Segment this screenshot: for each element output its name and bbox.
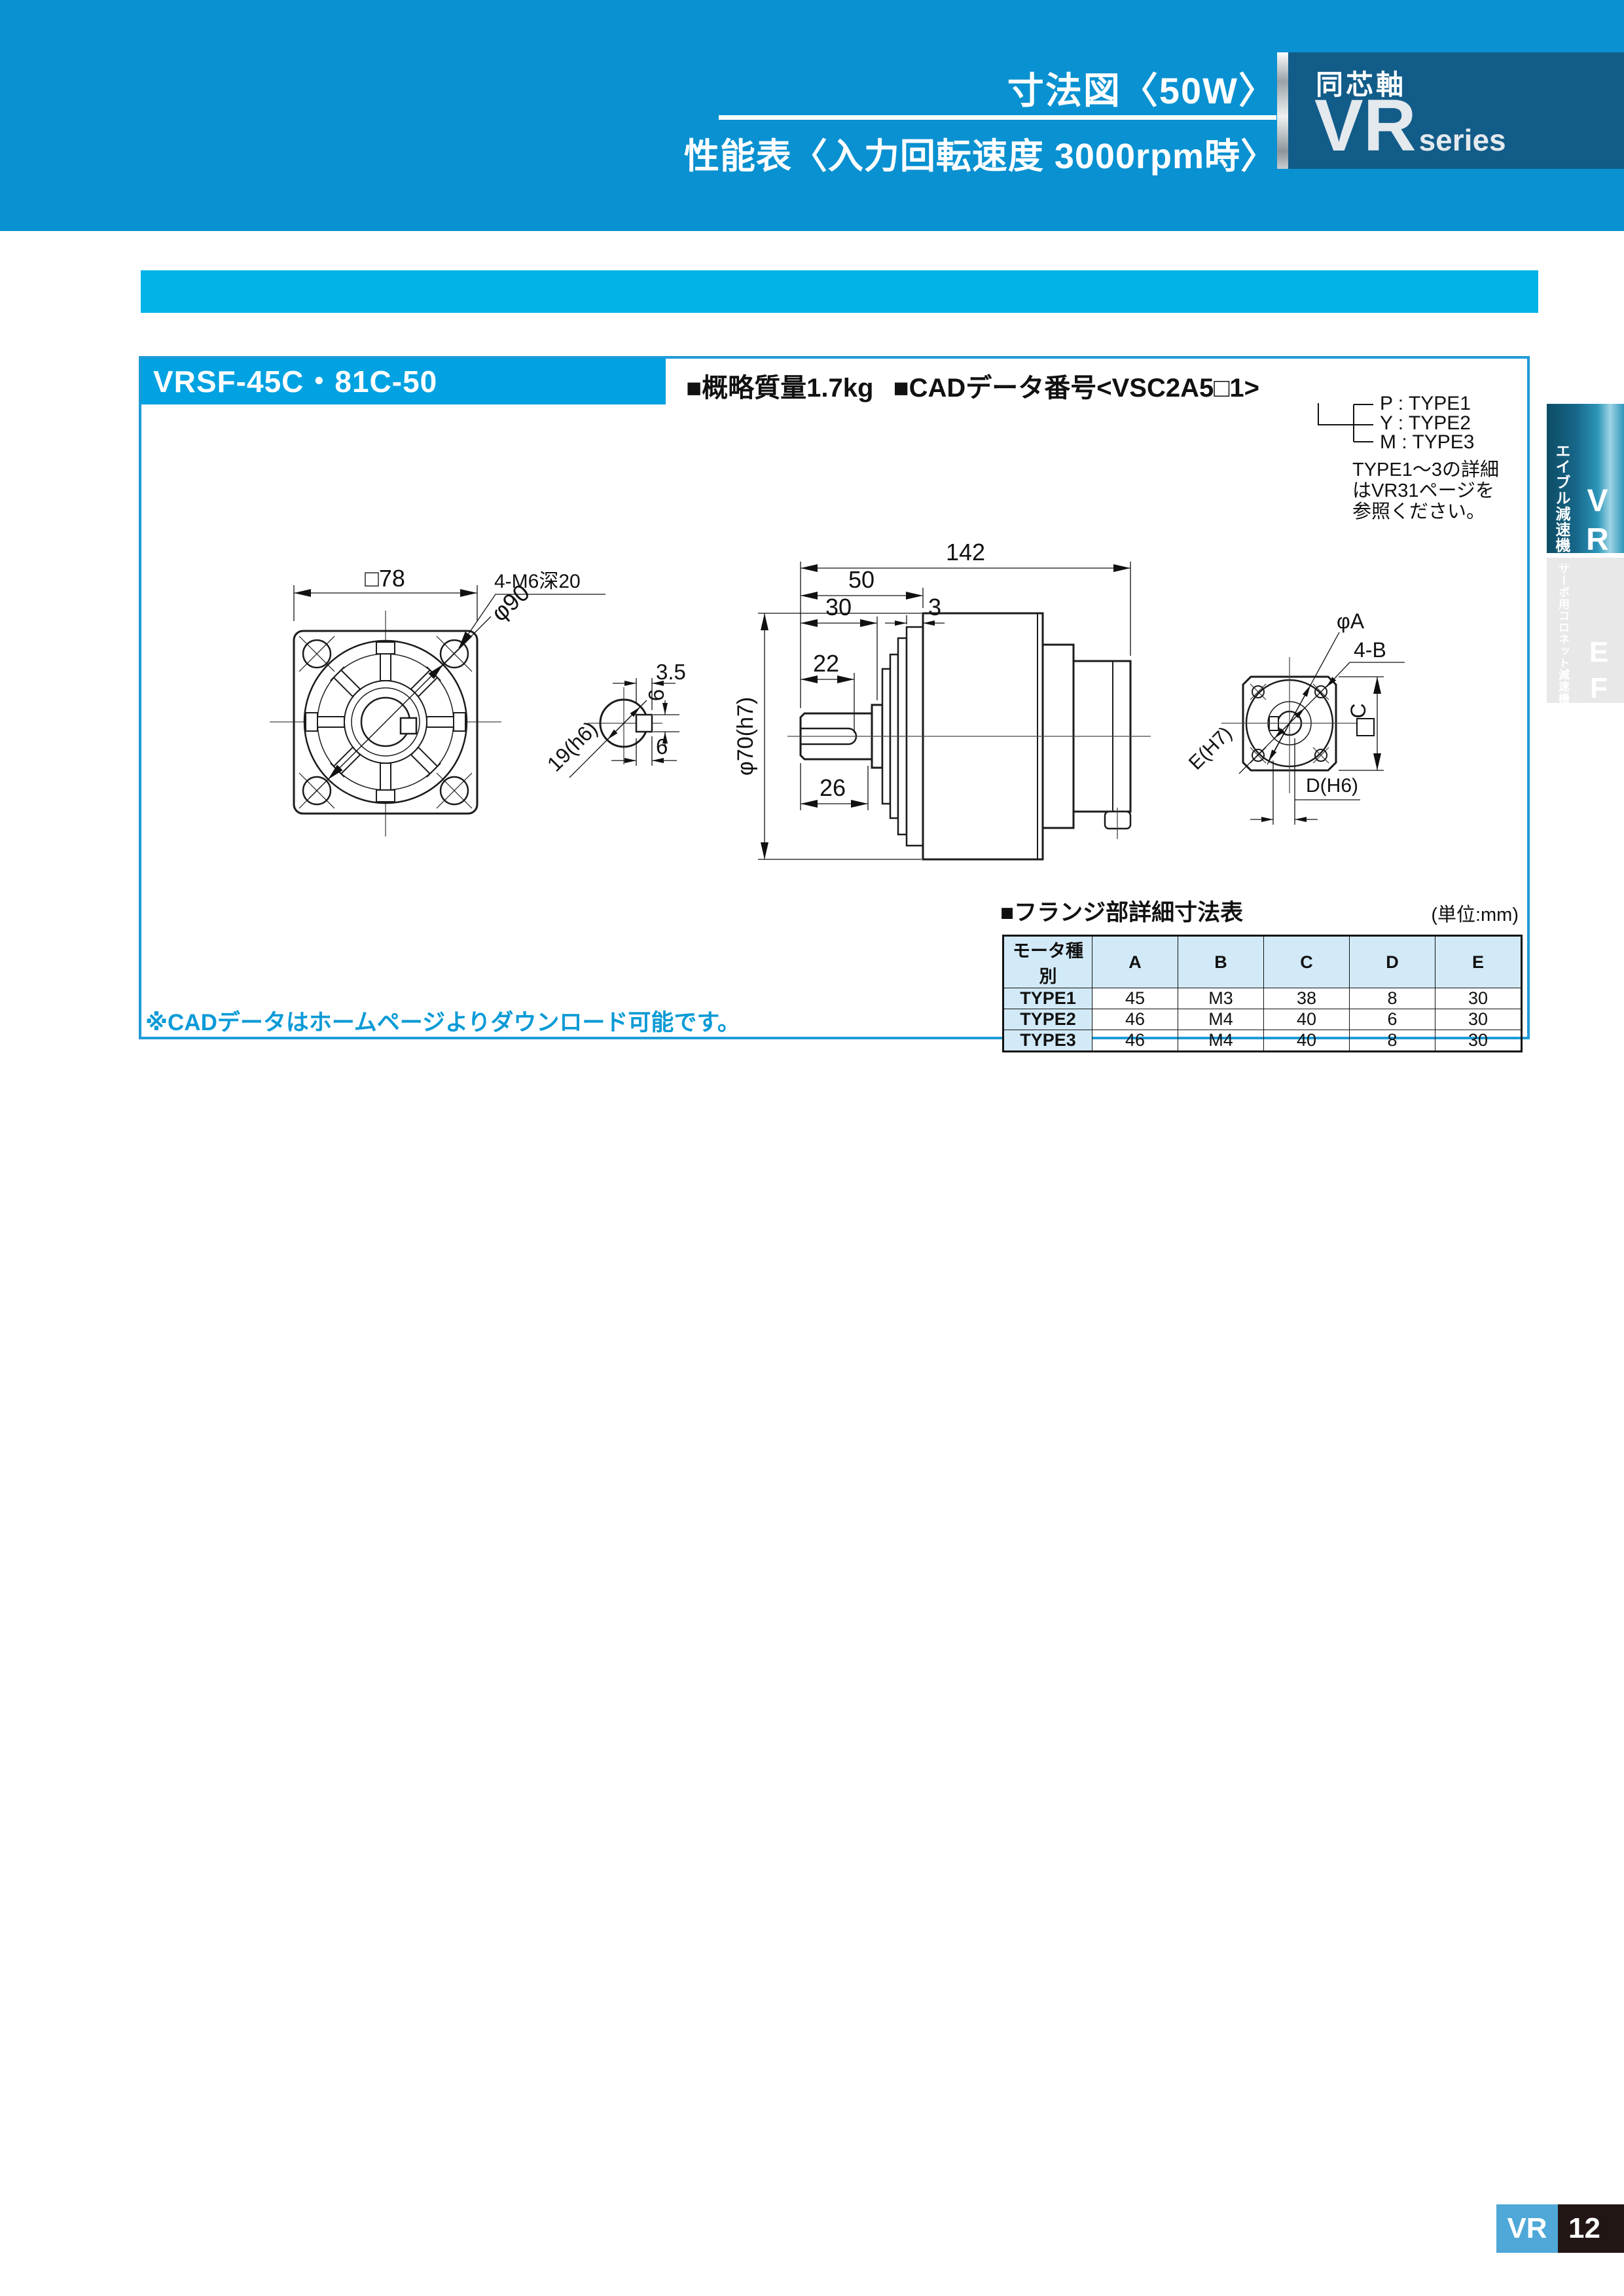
cell: 45 [1092,988,1178,1009]
sidebar-tab-vr-active[interactable]: エイブル減速機 VR [1547,404,1624,553]
type-note-line: 参照ください。 [1352,501,1499,522]
flange-table-unit: (単位:mm) [1431,899,1519,927]
title-divider [719,115,1276,120]
column-header: C [1264,936,1350,988]
flange-dimension-table: モータ種別ABCDE TYPE145M338830TYPE246M440630T… [1002,935,1523,1052]
series-name: VR series [1314,89,1506,162]
model-header: VRSF-45C・81C-50 [141,359,666,404]
cell: 40 [1264,1009,1350,1030]
cell: 6 [1350,1009,1435,1030]
cell: M3 [1178,988,1264,1009]
section-bar [141,270,1538,313]
column-header: A [1092,936,1178,988]
cell: M4 [1178,1009,1264,1030]
catalog-page: 寸法図〈50W〉 性能表〈入力回転速度 3000rpm時〉 同芯軸 VR ser… [0,0,1624,2296]
type-note-line: はVR31ページを [1352,480,1499,501]
cell: 30 [1435,988,1522,1009]
cell: 8 [1350,1030,1435,1052]
mass-label: ■概略質量1.7kg [686,367,873,404]
type-option-3: M : TYPE3 [1380,431,1475,454]
page-subtitle: 性能表〈入力回転速度 3000rpm時〉 [684,127,1276,179]
column-header: B [1178,936,1264,988]
cell: 30 [1435,1030,1522,1052]
series-box-accent [1277,52,1288,169]
tab-vr-label: エイブル減速機 [1551,443,1573,553]
cell: 38 [1264,988,1350,1009]
column-header: D [1350,936,1435,988]
table-row: TYPE145M338830 [1003,988,1522,1009]
page-title: 寸法図〈50W〉 [1007,62,1276,115]
column-header: E [1435,936,1522,988]
cell: 46 [1092,1009,1178,1030]
table-row: TYPE346M440830 [1003,1030,1522,1052]
cell: M4 [1178,1030,1264,1052]
table-header-row: モータ種別ABCDE [1003,936,1522,988]
spec-row: ■概略質量1.7kg ■CADデータ番号<VSC2A5□1> [686,367,1259,404]
tab-vr-code: VR [1579,484,1615,561]
row-header: TYPE1 [1003,988,1092,1009]
cell: 30 [1435,1009,1522,1030]
technical-drawing: □78 4-M6深20 φ90 [0,0,1624,2296]
series-suffix: series [1419,122,1506,158]
sidebar-tab-ef[interactable]: サーボ用コロネット減速機 EF [1547,558,1624,703]
type-option-1: P : TYPE1 [1380,393,1471,415]
cell: 40 [1264,1030,1350,1052]
type-note: TYPE1〜3の詳細 はVR31ページを 参照ください。 [1352,459,1499,522]
table-row: TYPE246M440630 [1003,1009,1522,1030]
cad-download-note: ※CADデータはホームページよりダウンロード可能です。 [145,1004,740,1037]
footer-series-badge: VR [1496,2204,1558,2253]
cad-number-label: ■CADデータ番号<VSC2A5□1> [893,367,1259,404]
cell: 46 [1092,1030,1178,1052]
model-number: VRSF-45C・81C-50 [153,359,437,404]
series-code: VR [1314,89,1416,162]
tab-ef-code: EF [1582,636,1615,708]
column-header: モータ種別 [1003,936,1092,988]
series-box: 同芯軸 VR series [1288,52,1624,169]
row-header: TYPE2 [1003,1009,1092,1030]
flange-table-title: ■フランジ部詳細寸法表 [1000,894,1243,927]
type-note-line: TYPE1〜3の詳細 [1352,459,1499,480]
row-header: TYPE3 [1003,1030,1092,1052]
cell: 8 [1350,988,1435,1009]
footer-page-number: 12 [1558,2204,1624,2253]
tab-ef-label: サーボ用コロネット減速機 [1555,563,1571,704]
